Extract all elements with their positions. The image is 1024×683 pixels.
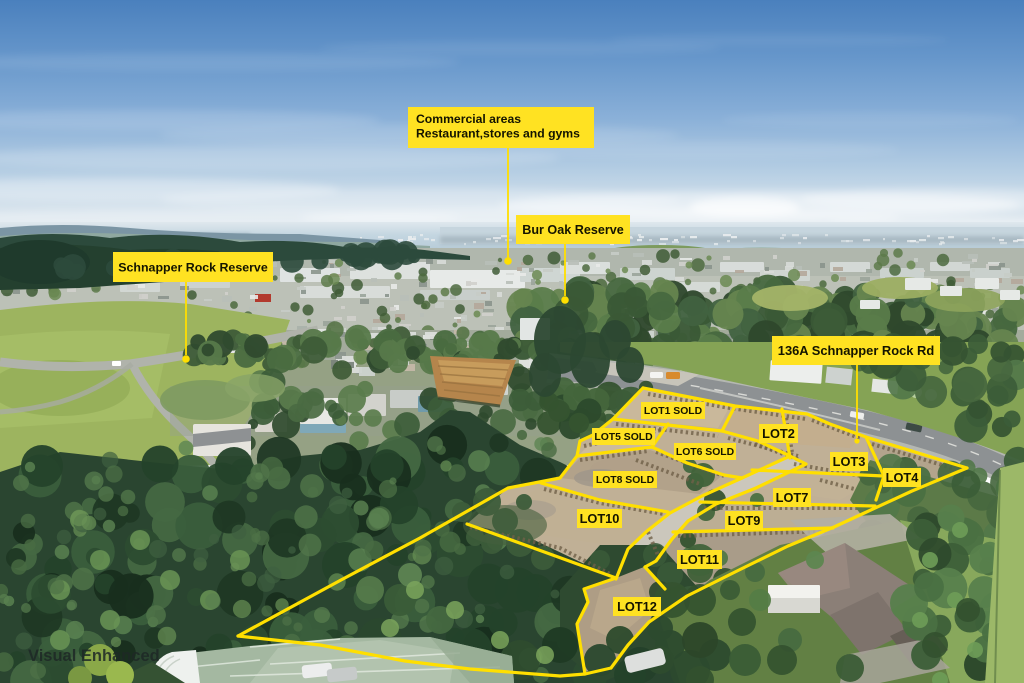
svg-text:LOT11: LOT11 <box>680 552 719 567</box>
svg-text:Schnapper Rock Reserve: Schnapper Rock Reserve <box>118 261 268 275</box>
svg-text:LOT7: LOT7 <box>776 490 809 505</box>
svg-text:136A Schnapper Rock Rd: 136A Schnapper Rock Rd <box>778 343 935 358</box>
svg-text:Visual Enhanced: Visual Enhanced <box>28 647 160 665</box>
svg-text:Restaurant,stores and gyms: Restaurant,stores and gyms <box>416 127 580 141</box>
svg-text:LOT10: LOT10 <box>580 511 620 526</box>
svg-text:Commercial areas: Commercial areas <box>416 112 521 126</box>
svg-text:LOT12: LOT12 <box>617 599 657 614</box>
svg-text:LOT3: LOT3 <box>833 454 866 469</box>
svg-text:LOT1 SOLD: LOT1 SOLD <box>644 406 703 417</box>
svg-text:LOT6 SOLD: LOT6 SOLD <box>676 447 735 458</box>
svg-text:LOT9: LOT9 <box>728 513 761 528</box>
svg-text:LOT5 SOLD: LOT5 SOLD <box>594 432 653 443</box>
svg-text:LOT2: LOT2 <box>762 426 795 441</box>
svg-text:LOT4: LOT4 <box>886 470 920 485</box>
svg-text:Bur Oak Reserve: Bur Oak Reserve <box>522 223 624 237</box>
svg-text:LOT8 SOLD: LOT8 SOLD <box>596 475 655 486</box>
